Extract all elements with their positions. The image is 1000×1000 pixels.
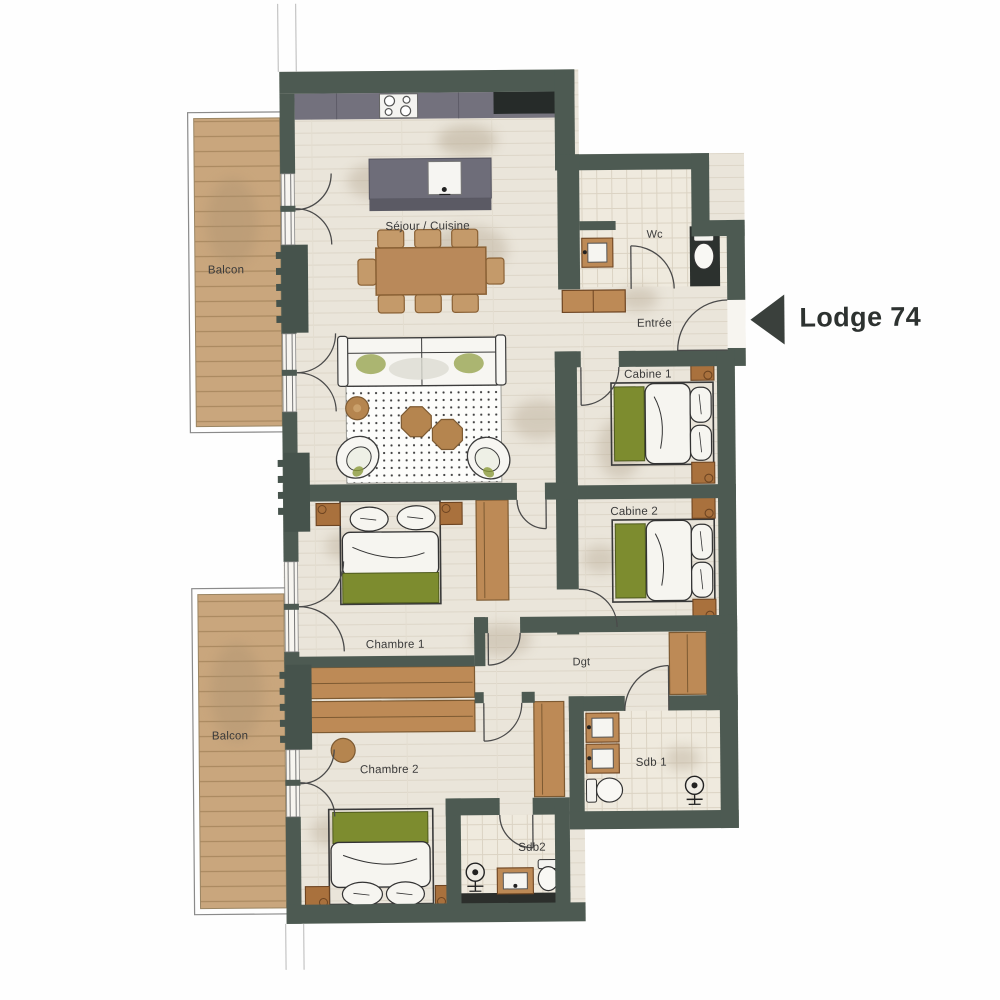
stove-cooktop bbox=[379, 94, 417, 118]
room-label-dgt: Dgt bbox=[573, 656, 591, 668]
kitchen-island bbox=[369, 158, 491, 211]
kitchen-counter bbox=[294, 91, 559, 119]
wardrobe bbox=[476, 500, 509, 600]
toilet bbox=[596, 778, 622, 802]
balcony-bottom bbox=[192, 588, 294, 915]
fridge-unit bbox=[493, 91, 556, 114]
island-sink bbox=[428, 161, 461, 194]
room-label-chambre2: Chambre 2 bbox=[360, 764, 419, 777]
french-door-window bbox=[280, 174, 296, 245]
dining-chair bbox=[486, 258, 504, 284]
floorplan-drawing bbox=[0, 0, 1000, 1000]
toilet bbox=[694, 243, 714, 269]
room-label-chambre1: Chambre 1 bbox=[366, 639, 425, 652]
octagon-table bbox=[432, 419, 462, 449]
dining-chair bbox=[415, 295, 441, 313]
french-door-window bbox=[284, 562, 300, 652]
room-label-entree: Entrée bbox=[637, 317, 672, 329]
floorplan: Balcon Séjour / Cuisine Wc Entrée Cabine… bbox=[0, 0, 1000, 1000]
nightstand bbox=[692, 497, 715, 518]
french-door-window bbox=[285, 750, 301, 817]
dining-chair bbox=[452, 294, 478, 312]
sofa bbox=[338, 335, 506, 386]
dining-chair bbox=[358, 259, 376, 285]
dining-chair bbox=[378, 295, 404, 313]
dining-table bbox=[376, 247, 486, 295]
room-label-cabine1: Cabine 1 bbox=[624, 368, 672, 380]
room-label-balcon-bottom: Balcon bbox=[212, 730, 248, 742]
room-label-sdb1: Sdb 1 bbox=[636, 757, 667, 769]
entry-bench bbox=[562, 290, 625, 313]
entry-door-opening bbox=[727, 300, 745, 348]
room-label-sejour-cuisine: Séjour / Cuisine bbox=[385, 220, 469, 233]
room-label-balcon-top: Balcon bbox=[208, 264, 244, 276]
unit-title: Lodge 74 bbox=[799, 302, 921, 334]
radiator-blocks bbox=[276, 245, 312, 750]
nightstand bbox=[692, 462, 715, 483]
unit-arrow-icon bbox=[750, 295, 784, 345]
room-label-sdb2: Sdb2 bbox=[518, 842, 546, 854]
wardrobe bbox=[534, 701, 565, 796]
floorplan-page: Balcon Séjour / Cuisine Wc Entrée Cabine… bbox=[0, 0, 1000, 1000]
french-door-window bbox=[282, 334, 298, 412]
octagon-table bbox=[401, 407, 431, 437]
room-label-cabine2: Cabine 2 bbox=[610, 506, 658, 518]
room-label-wc: Wc bbox=[646, 229, 662, 241]
